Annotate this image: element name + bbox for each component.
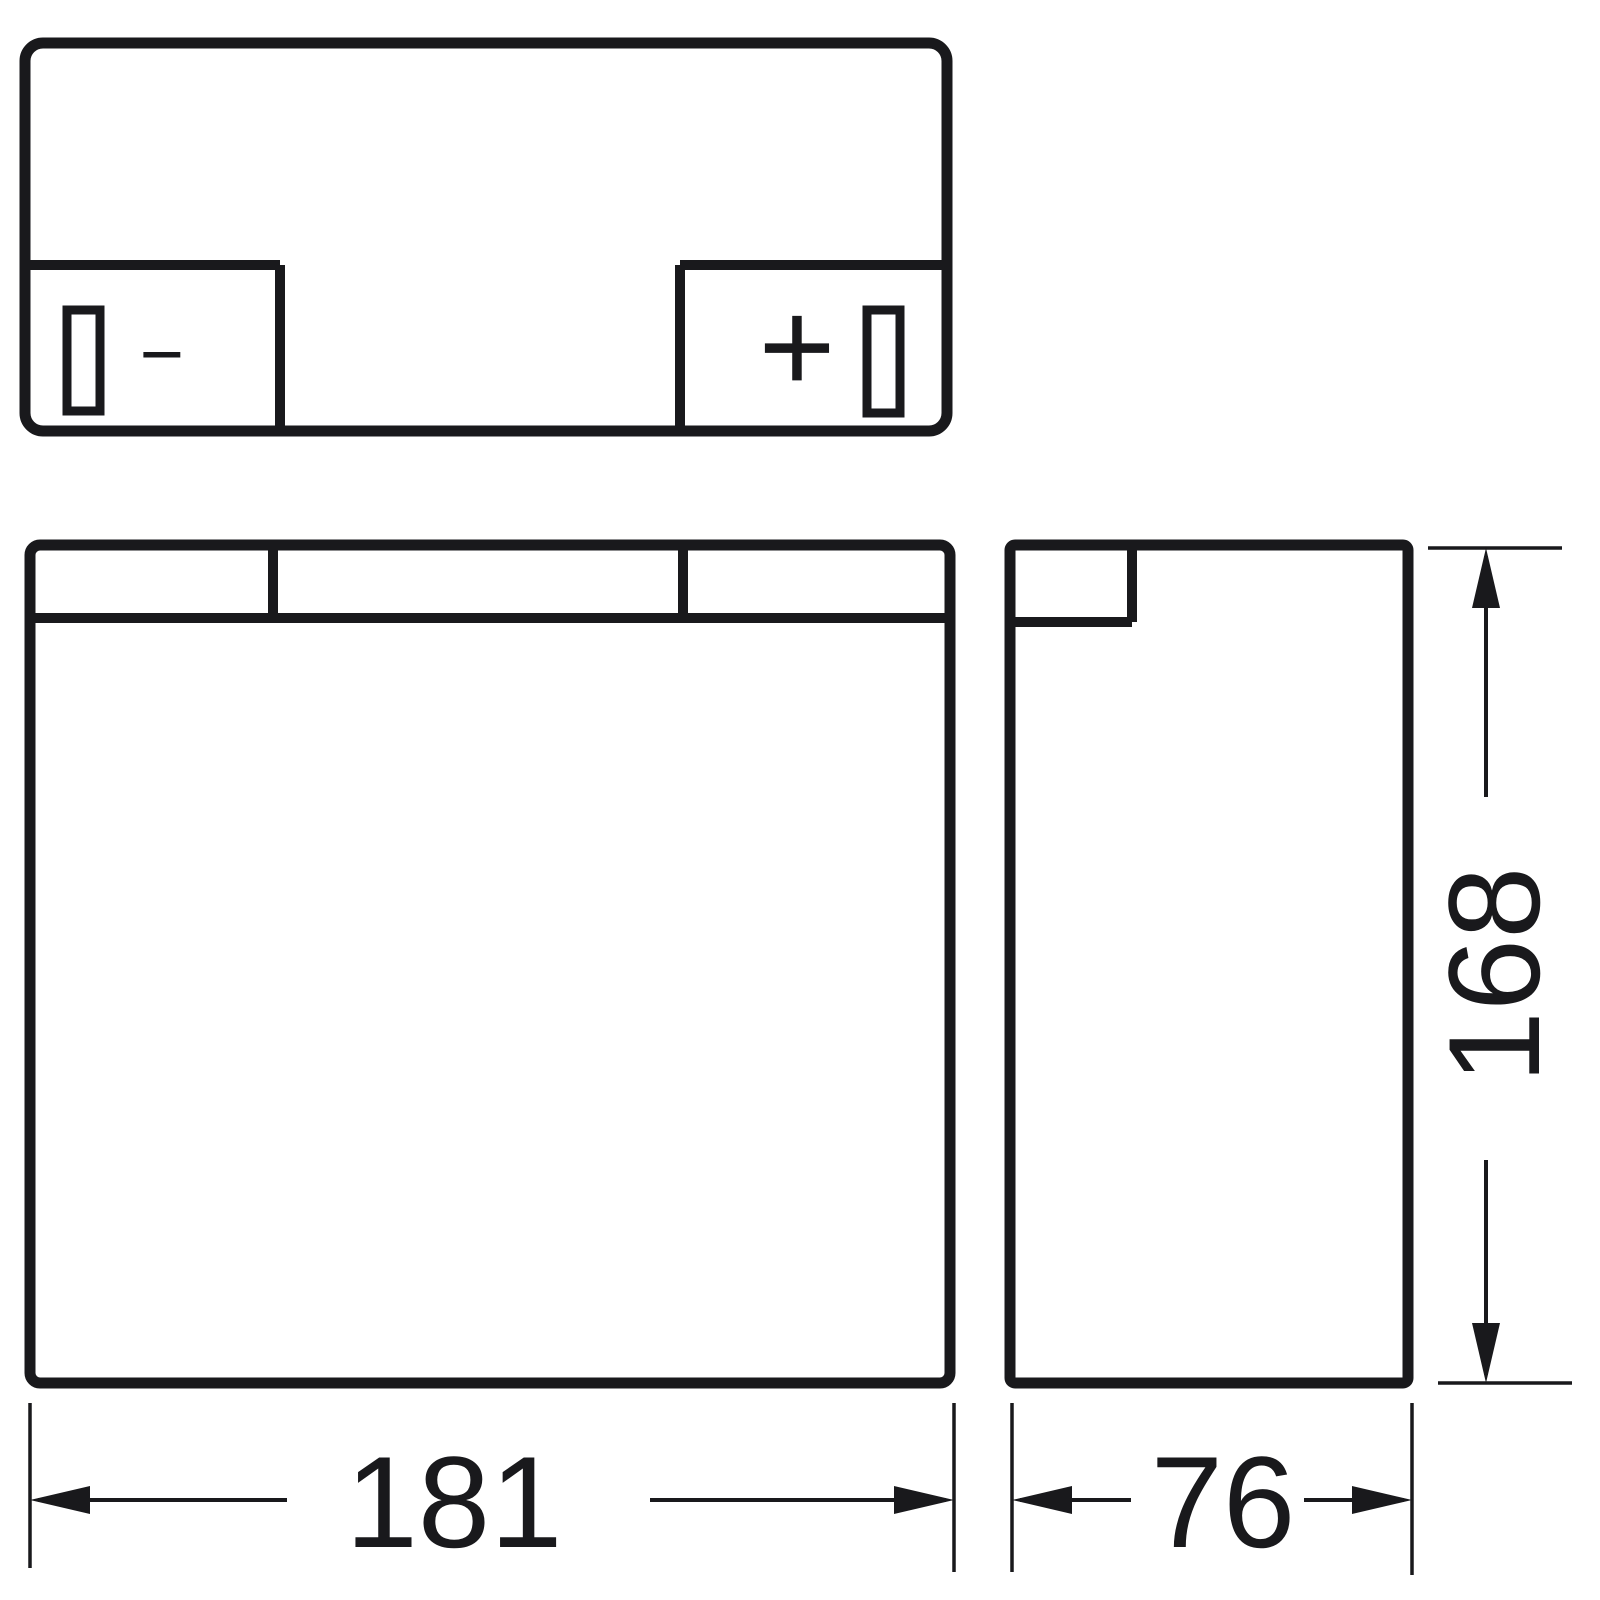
top-view: − + [25,43,947,431]
dimension-depth: 76 [1012,1403,1412,1575]
plus-icon: + [758,273,835,420]
front-view-lid-dividers [273,545,683,618]
arrow-left-icon [1012,1486,1072,1514]
arrow-up-icon [1472,548,1500,608]
dimension-length: 181 [30,1403,954,1575]
dimension-height: 168 [1421,548,1572,1383]
drawing-canvas: − + 181 76 168 [0,0,1600,1600]
dimension-drawing: − + 181 76 168 [0,0,1600,1600]
dimension-depth-value: 76 [1151,1429,1296,1575]
arrow-down-icon [1472,1323,1500,1383]
front-view-outline [30,545,950,1383]
side-view [1010,545,1408,1383]
side-view-lid-notch [1010,545,1132,622]
positive-terminal-slot [867,310,900,413]
arrow-left-icon [30,1486,90,1514]
arrow-right-icon [894,1486,954,1514]
minus-icon: − [140,312,184,397]
arrow-right-icon [1352,1486,1412,1514]
front-view [30,545,950,1383]
side-view-outline [1010,545,1408,1383]
dimension-length-value: 181 [346,1429,563,1575]
negative-terminal-slot [67,310,100,411]
dimension-height-value: 168 [1421,867,1567,1084]
